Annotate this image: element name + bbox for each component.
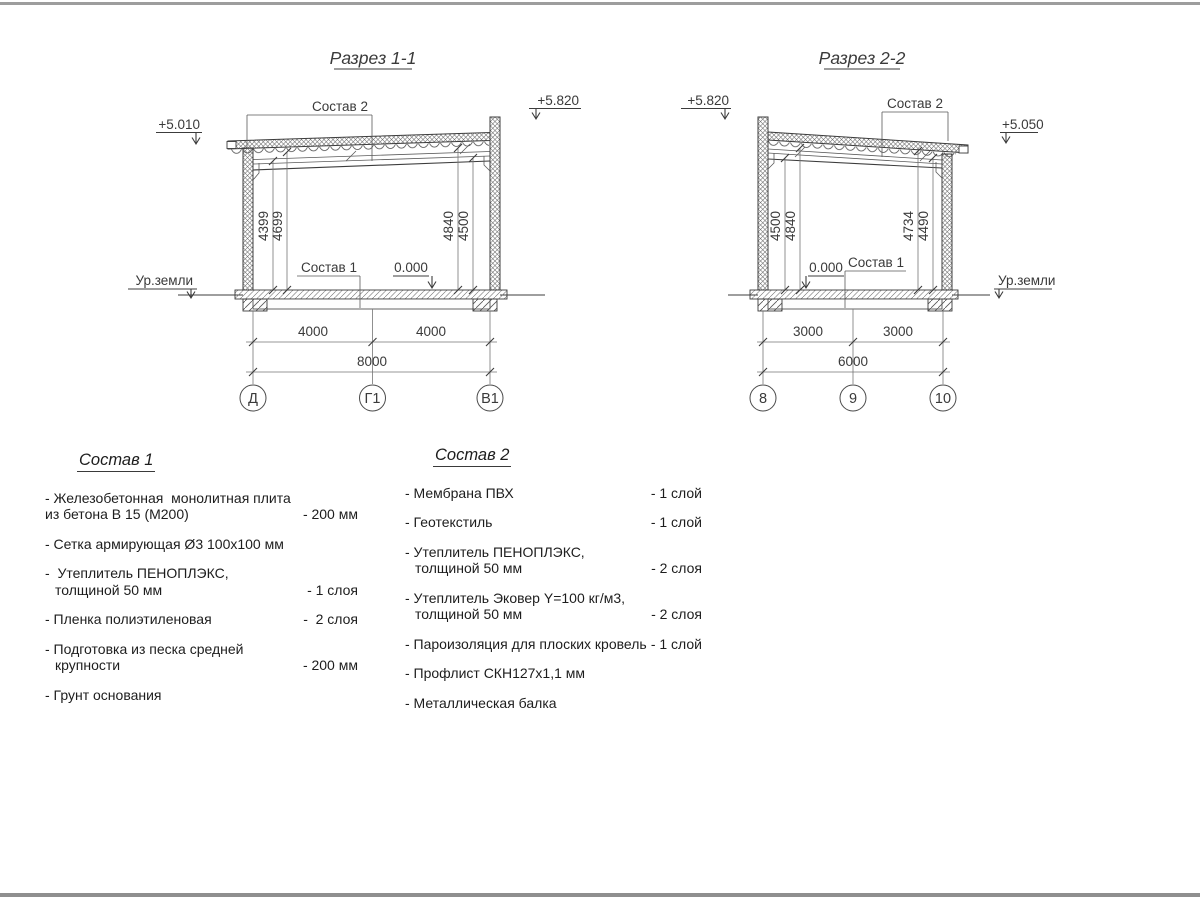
elevation-value: +5.820	[537, 93, 579, 108]
legend-item: - Грунт основания	[45, 687, 358, 704]
item-text: - Железобетонная монолитная плита	[45, 490, 291, 507]
item-text: - Утеплитель Эковер Y=100 кг/м3,	[405, 590, 625, 607]
item-qty: - 2 слоя	[303, 611, 358, 628]
column-capital-right	[484, 156, 490, 171]
item-text: - Грунт основания	[45, 687, 162, 704]
bottom-dimensions: 4000 4000 8000	[246, 309, 497, 384]
interior-dimensions: 4399 4699 4840 4500	[256, 144, 477, 294]
floor-slab	[178, 290, 545, 311]
sections-canvas: Разрез 1-1 +5.010 +5.820	[0, 0, 1200, 460]
dim-label: 6000	[838, 354, 868, 369]
zero-value: 0.000	[394, 260, 428, 275]
legend-item: - Профлист СКН127х1,1 мм	[405, 665, 702, 682]
axis-label: 10	[935, 391, 951, 407]
dim-label: 4840	[783, 211, 798, 241]
page-border-bottom	[0, 893, 1200, 897]
axis-label: 8	[759, 391, 767, 407]
axis-label: 9	[849, 391, 857, 407]
legend-item: - Сетка армирующая Ø3 100х100 мм	[45, 536, 358, 553]
elevation-mark-right: +5.820	[529, 93, 581, 119]
dim-label: 4399	[256, 211, 271, 241]
axis-bubbles: Д Г1 В1	[240, 385, 503, 411]
dim-label: 3000	[883, 324, 913, 339]
elevation-value: +5.010	[158, 117, 200, 132]
wall-left-parapet	[758, 117, 768, 290]
item-qty: - 2 слоя	[651, 606, 702, 623]
item-qty: - 1 слой	[651, 514, 702, 531]
composition-2-title: Состав 2	[433, 447, 702, 464]
elevation-mark-left: +5.010	[156, 117, 202, 144]
callout-label: Состав 1	[848, 255, 904, 270]
item-text-line2: крупности	[45, 657, 244, 674]
legend-item: - Геотекстиль - 1 слой	[405, 514, 702, 531]
floor-slab	[728, 290, 990, 311]
dim-label: 4000	[416, 324, 446, 339]
axis-label: Г1	[365, 391, 381, 407]
axis-bubbles: 8 9 10	[750, 385, 956, 411]
item-text: - Утеплитель ПЕНОПЛЭКС,	[405, 544, 585, 561]
zero-value: 0.000	[809, 260, 843, 275]
axis-label: Д	[248, 391, 258, 407]
legend-item: - Подготовка из песка среднейкрупности -…	[45, 641, 358, 674]
item-text: - Профлист СКН127х1,1 мм	[405, 665, 585, 682]
item-text: - Пароизоляция для плоских кровель	[405, 636, 647, 653]
dim-label: 4699	[270, 211, 285, 241]
legend-item: - Утеплитель ПЕНОПЛЭКС,толщиной 50 мм - …	[45, 565, 358, 598]
column-capital-left	[253, 163, 259, 180]
dim-label: 4500	[768, 211, 783, 241]
item-qty: - 200 мм	[303, 506, 358, 523]
column-capital-right	[936, 162, 942, 178]
zero-level-mark: 0.000	[802, 260, 844, 288]
composition-1-legend: Состав 1 - Железобетонная монолитная пли…	[45, 452, 358, 716]
item-text: - Утеплитель ПЕНОПЛЭКС,	[45, 565, 229, 582]
bottom-dimensions: 3000 3000 6000	[757, 309, 950, 384]
callout-label: Состав 2	[312, 99, 368, 114]
item-text-line2: толщиной 50 мм	[405, 560, 585, 577]
axis-label: В1	[481, 391, 499, 407]
legend-item: - Пленка полиэтиленовая - 2 слоя	[45, 611, 358, 628]
callout-label: Состав 2	[887, 96, 943, 111]
item-qty: - 1 слой	[651, 485, 702, 502]
ground-label: Ур.земли	[998, 273, 1055, 288]
elevation-value: +5.050	[1002, 117, 1044, 132]
elevation-value: +5.820	[687, 93, 729, 108]
section-2-2-drawing: Разрез 2-2 +5.820 +5.050	[681, 48, 1055, 411]
item-qty: - 1 слой	[651, 636, 702, 653]
dim-label: 4000	[298, 324, 328, 339]
legend-item: - Утеплитель ПЕНОПЛЭКС,толщиной 50 мм - …	[405, 544, 702, 577]
section-2-2-title: Разрез 2-2	[819, 48, 906, 68]
item-qty: - 200 мм	[303, 657, 358, 674]
callout-label: Состав 1	[301, 260, 357, 275]
composition-2-legend: Состав 2 - Мембрана ПВХ - 1 слой - Геоте…	[405, 447, 702, 724]
legend-item: - Пароизоляция для плоских кровель - 1 с…	[405, 636, 702, 653]
wall-left	[243, 148, 253, 290]
ground-level-mark: Ур.земли	[128, 273, 197, 298]
item-qty: - 2 слоя	[651, 560, 702, 577]
wall-right	[942, 154, 952, 290]
zero-level-mark: 0.000	[393, 260, 436, 288]
ground-level-mark: Ур.земли	[994, 273, 1055, 298]
item-text: - Металлическая балка	[405, 695, 557, 712]
item-text-line2: толщиной 50 мм	[45, 582, 229, 599]
item-text: - Подготовка из песка средней	[45, 641, 244, 658]
legend-item: - Утеплитель Эковер Y=100 кг/м3,толщиной…	[405, 590, 702, 623]
legend-title-text: Состав 1	[77, 451, 155, 472]
composition-1-title: Состав 1	[77, 452, 358, 469]
legend-item: - Железобетонная монолитная плитаиз бето…	[45, 490, 358, 523]
ground-label: Ур.земли	[136, 273, 193, 288]
legend-title-text: Состав 2	[433, 446, 511, 467]
dim-label: 4840	[441, 211, 456, 241]
item-text: - Сетка армирующая Ø3 100х100 мм	[45, 536, 284, 553]
dim-label: 4490	[916, 211, 931, 241]
dim-label: 8000	[357, 354, 387, 369]
item-text: - Геотекстиль	[405, 514, 492, 531]
roof-assembly	[227, 133, 490, 171]
section-1-1-drawing: Разрез 1-1 +5.010 +5.820	[128, 48, 581, 411]
item-text: - Пленка полиэтиленовая	[45, 611, 212, 628]
section-1-1-title: Разрез 1-1	[330, 48, 417, 68]
column-capital-left	[768, 153, 774, 169]
item-qty: - 1 слоя	[307, 582, 358, 599]
legend-item: - Металлическая балка	[405, 695, 702, 712]
dim-label: 4734	[901, 210, 916, 241]
legend-item: - Мембрана ПВХ - 1 слой	[405, 485, 702, 502]
item-text: - Мембрана ПВХ	[405, 485, 514, 502]
elevation-mark-right: +5.050	[1000, 117, 1044, 143]
dim-label: 4500	[456, 211, 471, 241]
elevation-mark-left: +5.820	[681, 93, 731, 119]
item-text-line2: толщиной 50 мм	[405, 606, 625, 623]
dim-label: 3000	[793, 324, 823, 339]
item-text-line2: из бетона В 15 (М200)	[45, 506, 291, 523]
wall-right-parapet	[490, 117, 500, 290]
